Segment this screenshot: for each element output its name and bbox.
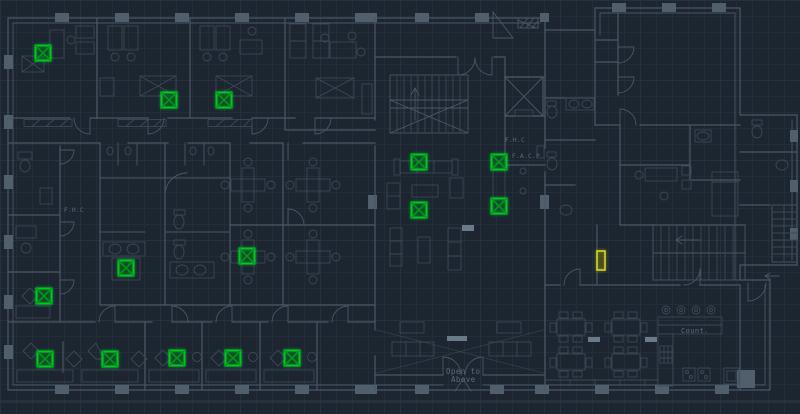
device-markers-layer <box>36 46 606 367</box>
device-marker[interactable] <box>170 351 185 366</box>
device-marker[interactable] <box>162 93 177 108</box>
plan-labels-layer: F.H.CF.H.CF.A.C.POpen toAboveCount. <box>64 137 709 384</box>
threshold-bar <box>447 336 467 341</box>
selected-device-marker[interactable] <box>597 251 605 270</box>
bottom-office-desks <box>17 343 317 382</box>
floor-box <box>588 337 600 342</box>
device-marker[interactable] <box>36 46 51 61</box>
center-hall-walls <box>375 12 545 391</box>
device-marker[interactable] <box>217 93 232 108</box>
device-marker[interactable] <box>103 352 118 367</box>
elevator <box>505 77 543 116</box>
meeting-table <box>221 158 275 212</box>
plan-label-counter: Count. <box>681 327 709 335</box>
device-marker[interactable] <box>240 249 255 264</box>
plan-label-above: Above <box>451 375 476 384</box>
device-marker[interactable] <box>37 289 52 304</box>
threshold-bar <box>462 225 474 231</box>
plan-label-fhc-left: F.H.C <box>64 207 84 214</box>
lounge-furniture <box>387 159 505 270</box>
cad-drawing-canvas[interactable]: F.H.CF.H.CF.A.C.POpen toAboveCount. <box>0 0 800 414</box>
counter <box>658 306 722 386</box>
device-marker[interactable] <box>285 351 300 366</box>
staircase-right <box>653 225 745 280</box>
device-marker[interactable] <box>119 261 134 276</box>
device-marker[interactable] <box>492 199 507 214</box>
meeting-table <box>286 158 340 212</box>
cafeteria-table <box>550 347 592 377</box>
meeting-table <box>286 230 340 284</box>
plan-label-facp: F.A.C.P <box>512 153 540 160</box>
device-marker[interactable] <box>38 352 53 367</box>
staircase-main <box>390 75 468 133</box>
cafeteria-table <box>605 312 647 342</box>
right-wing-walls <box>545 13 797 390</box>
device-marker[interactable] <box>412 155 427 170</box>
device-marker[interactable] <box>226 351 241 366</box>
furniture-layer <box>16 24 788 386</box>
floor-box <box>645 337 657 342</box>
cafeteria-table <box>605 347 647 377</box>
device-marker[interactable] <box>492 155 507 170</box>
device-marker[interactable] <box>412 203 427 218</box>
cafeteria-table <box>550 312 592 342</box>
floorplan-svg: F.H.CF.H.CF.A.C.POpen toAboveCount. <box>0 0 800 414</box>
floorplan-linework <box>0 3 800 402</box>
plan-label-fhc-center: F.H.C <box>505 137 525 144</box>
columns <box>4 3 798 394</box>
